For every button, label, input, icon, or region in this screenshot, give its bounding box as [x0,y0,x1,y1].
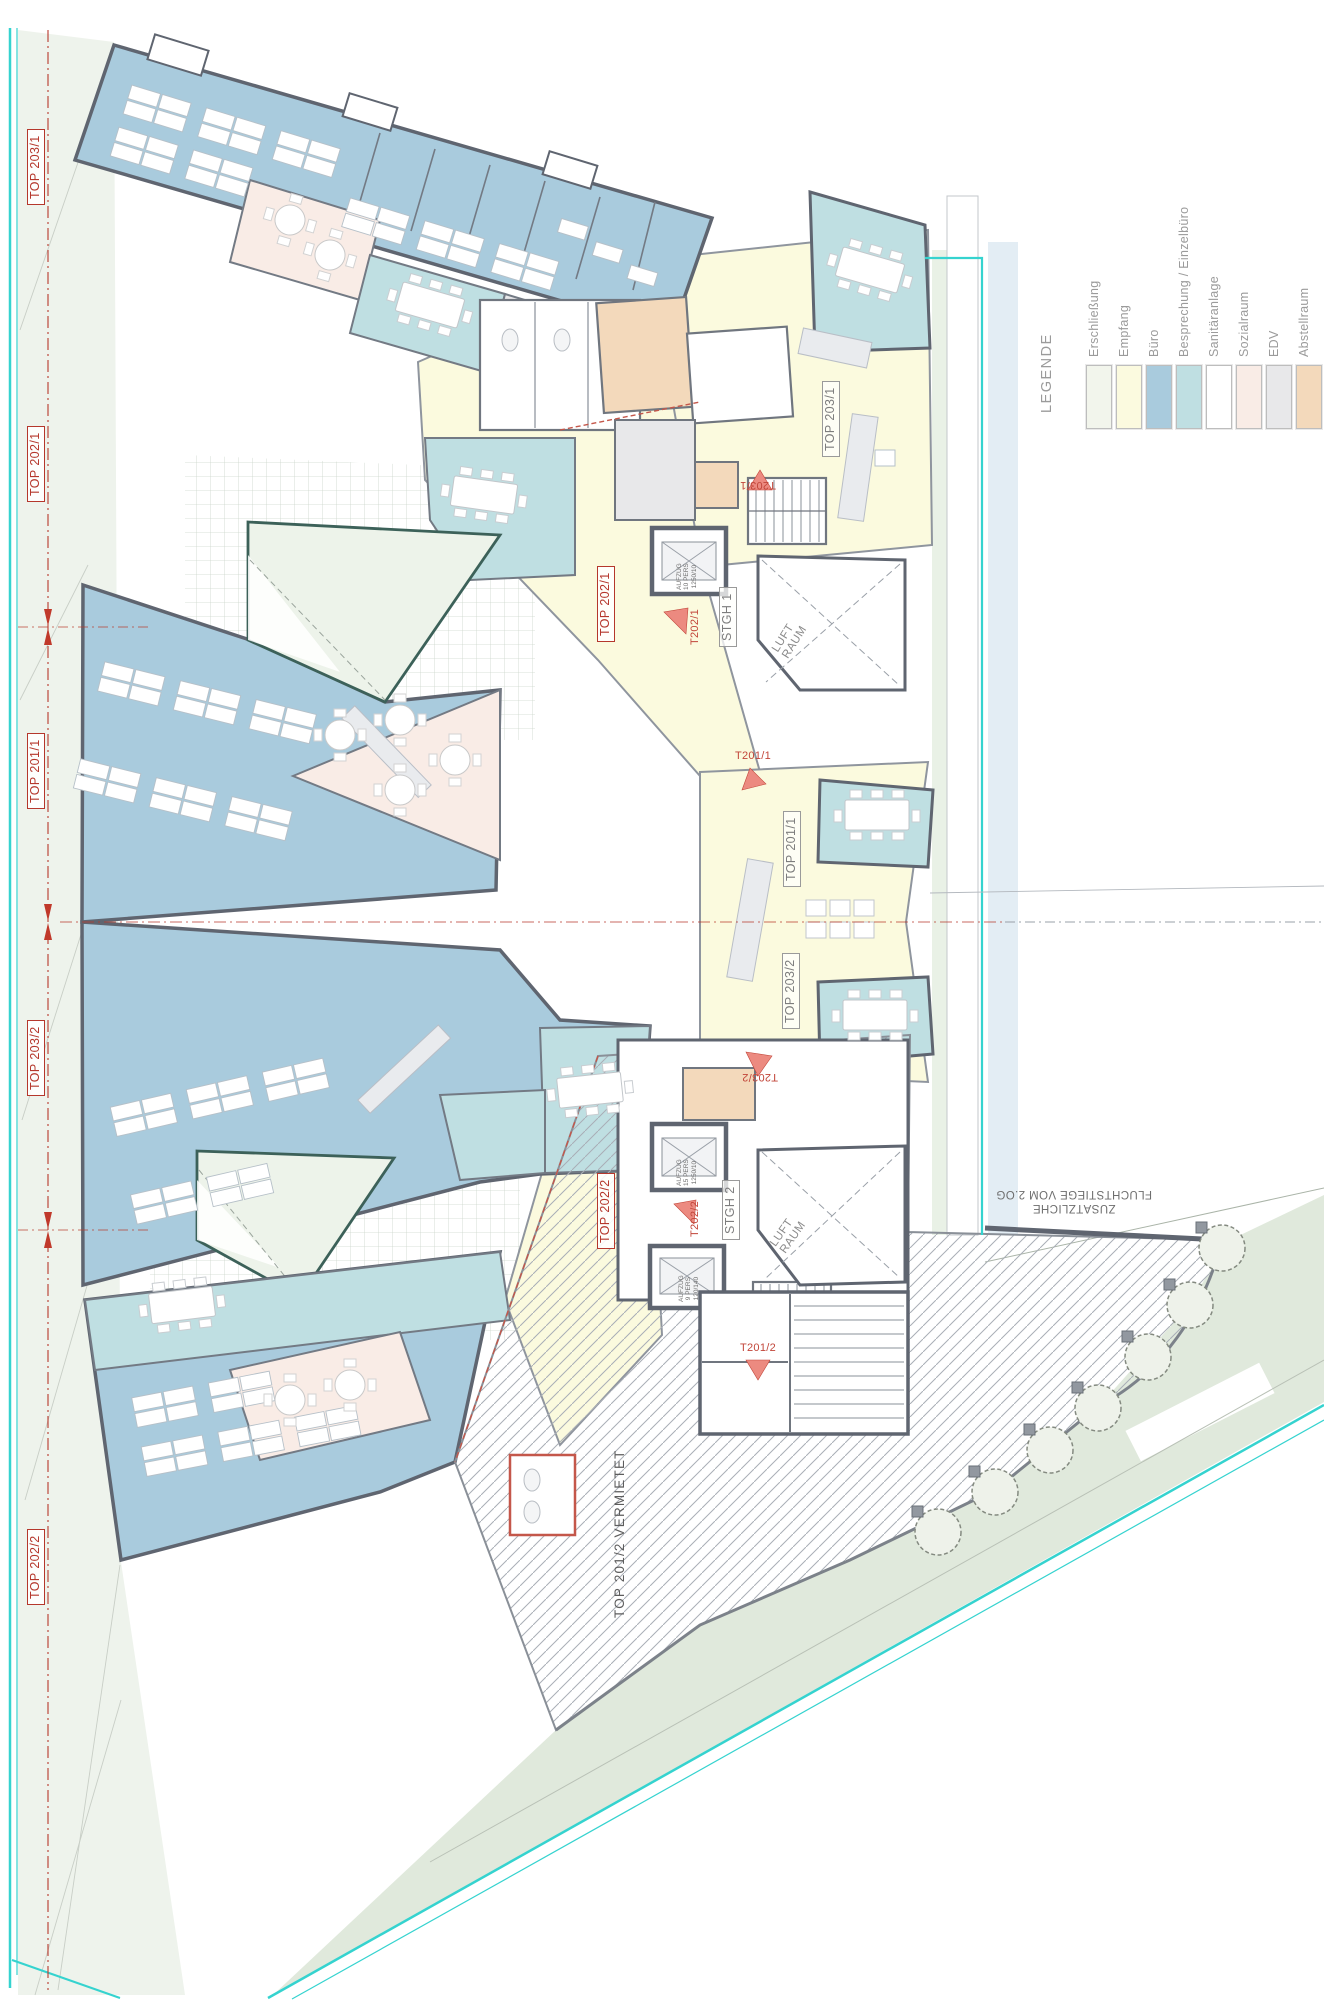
unit-label-top-201-2-vermietet: TOP 201/2 VERMIETET [613,1449,628,1618]
legend-swatch-edv [1266,365,1292,429]
unit-label-top-202-2: TOP 202/2 [597,1173,615,1249]
sidewalk-strip-green [932,250,947,1235]
door-label-t203-2: T203/2 [742,1070,778,1082]
escape-stair-note: ZUSÄTZLICHE FLUCHTSTIEGE VOM 2.OG [990,1186,1158,1215]
door-label-t202-2: T202/2 [690,1201,702,1237]
door-label-t203-1: T203/1 [740,478,776,490]
floorplan-page: TOP 203/1 TOP 202/1 TOP 201/1 TOP 203/2 … [0,0,1324,2000]
legend-label-empfang: Empfang [1118,305,1132,357]
legend-label-edv: EDV [1268,330,1282,357]
axis-label-top-202-2: TOP 202/2 [27,1529,45,1605]
legend-label-abstellraum: Abstellraum [1298,288,1312,357]
elevator-label-1: AUFZUG10 PERS1250/10 [676,563,698,590]
legend-swatch-sanitaer [1206,365,1232,429]
stairwell-label-stgh1: STGH 1 [719,587,737,647]
door-label-t201-2: T201/2 [740,1343,776,1355]
sidewalk-strip-white [947,196,978,1235]
legend-swatch-besprechung [1176,365,1202,429]
unit-label-top-203-2: TOP 203/2 [782,953,800,1029]
elevator-label-3: AUFZUG9 PERS120/140 [678,1275,700,1302]
legend-swatch-empfang [1116,365,1142,429]
legend-swatch-buero [1146,365,1172,429]
legend-swatch-abstellraum [1296,365,1322,429]
stairwell-label-stgh2: STGH 2 [722,1180,740,1240]
escape-stair-block [700,1292,908,1434]
luftraum-upper [758,556,905,690]
note-line-1: ZUSÄTZLICHE [1033,1202,1116,1214]
unit-label-top-201-1: TOP 201/1 [783,811,801,887]
unit-label-top-202-1: TOP 202/1 [597,566,615,642]
wc-upper [687,327,793,424]
legend-label-erschliessung: Erschließung [1088,280,1102,357]
axis-label-top-202-1: TOP 202/1 [27,426,45,502]
door-label-t202-1: T202/1 [690,609,702,645]
axis-label-top-203-1: TOP 203/1 [27,129,45,205]
legend-swatch-sozialraum [1236,365,1262,429]
legend-label-buero: Büro [1148,329,1162,357]
roof-wc-room [510,1455,575,1535]
axis-label-top-203-2: TOP 203/2 [27,1020,45,1096]
legend-label-sanitaer: Sanitäranlage [1208,276,1222,357]
abstellraum-upper [596,297,693,413]
legend-title: LEGENDE [1040,333,1056,413]
legend-swatch-erschliessung [1086,365,1112,429]
elevator-label-2: AUFZUG15 PERS1250/10 [676,1159,698,1186]
legend-label-sozialraum: Sozialraum [1238,291,1252,357]
floor-plan-canvas [0,0,1324,2000]
door-label-t201-1: T201/1 [735,751,771,763]
legend-label-besprechung: Besprechung / Einzelbüro [1178,207,1192,357]
street-band [988,242,1018,1234]
note-line-2: FLUCHTSTIEGE VOM 2.OG [996,1187,1152,1199]
unit-label-top-203-1: TOP 203/1 [822,381,840,457]
edv-core-upper [615,420,695,520]
axis-label-top-201-1: TOP 201/1 [27,733,45,809]
